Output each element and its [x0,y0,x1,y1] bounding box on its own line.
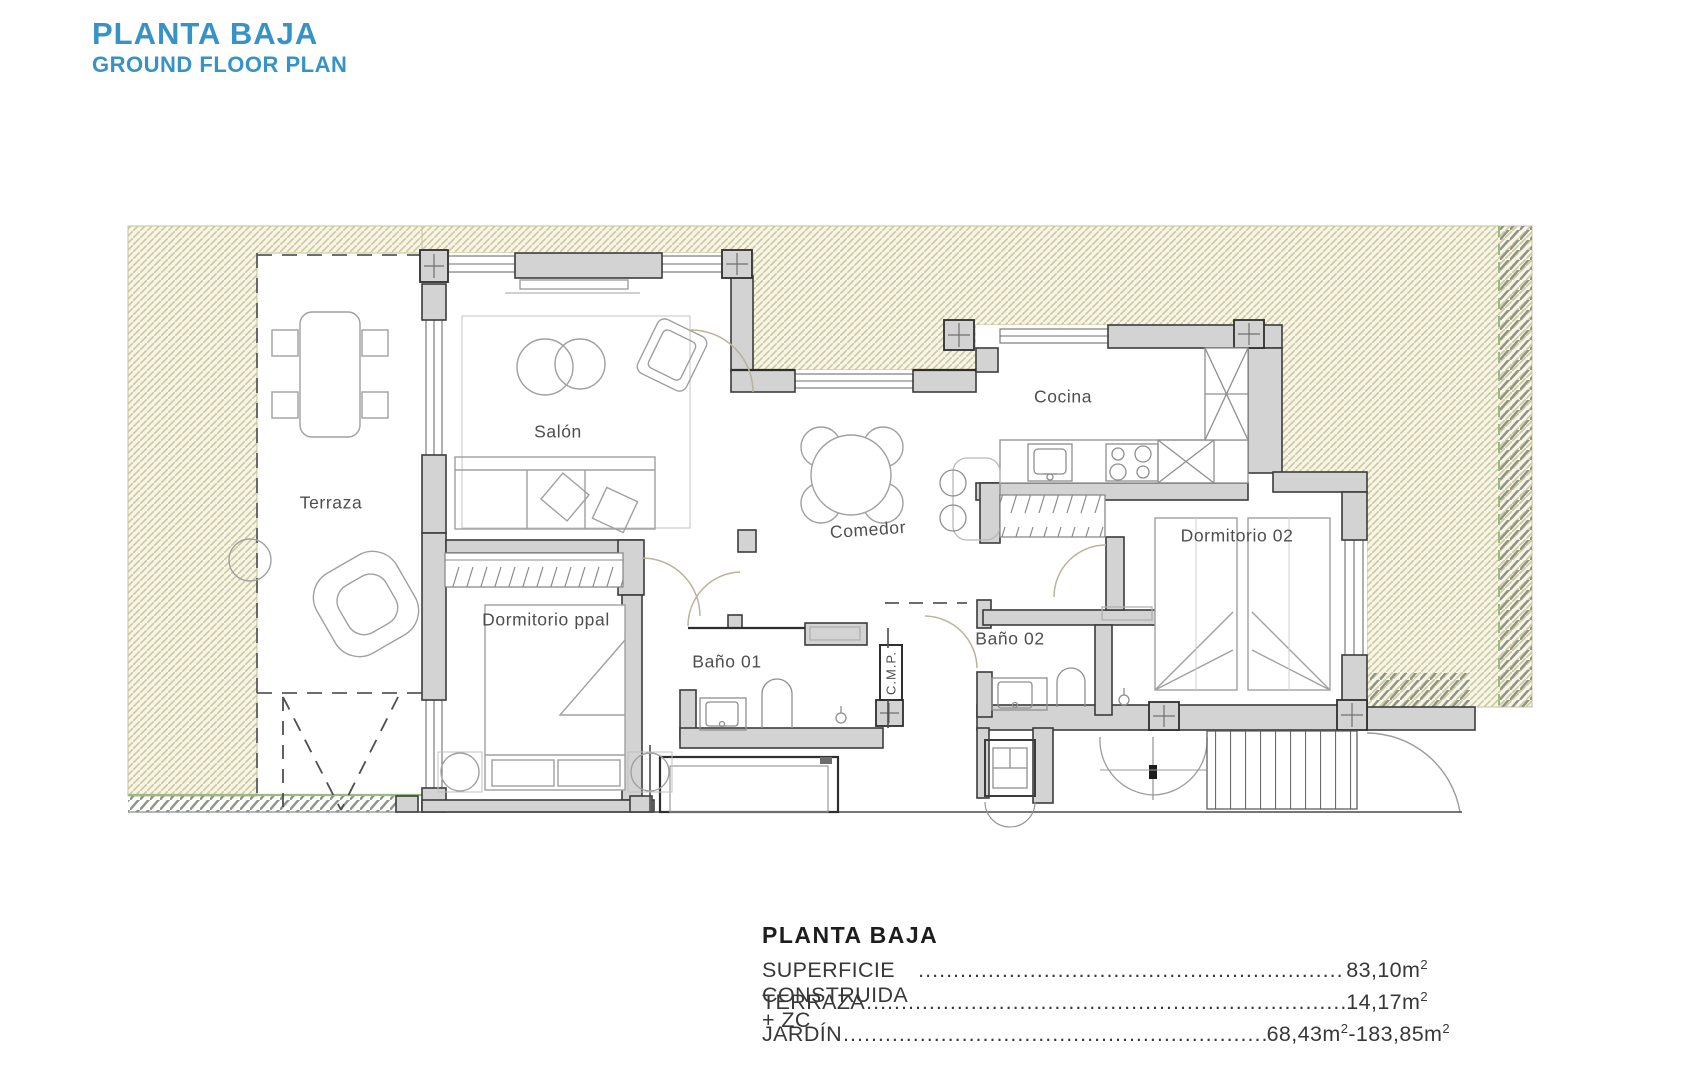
terrace-dashed-boundary [257,253,446,796]
room-label-terraza: Terraza [300,493,363,514]
door-hinge-mark [1149,765,1157,779]
dotted-leader [866,990,1345,1015]
room-label-dormitorio-ppal: Dormitorio ppal [482,610,610,631]
area-summary: PLANTA BAJA SUPERFICIE CONSTRUIDA + ZC83… [762,922,1450,1053]
floor-plan: Terraza Salón Cocina Comedor Dormitorio … [0,0,1700,1080]
room-label-cocina: Cocina [1034,387,1092,408]
room-label-dormitorio-02: Dormitorio 02 [1181,526,1294,547]
summary-heading: PLANTA BAJA [762,922,1450,949]
terrace-furniture [229,312,429,667]
summary-label: TERRAZA [762,990,865,1015]
room-label-salon: Salón [534,422,582,443]
dotted-leader [918,958,1345,983]
summary-value-2: -183,85m [1348,1022,1442,1046]
room-label-cmp: C.M.P. [884,651,899,695]
room-label-bano-01: Baño 01 [692,652,761,673]
page: PLANTA BAJA GROUND FLOOR PLAN [0,0,1700,1080]
room-label-bano-02: Baño 02 [975,629,1044,650]
section-band-bottom-right [1370,673,1470,707]
porch-door [660,757,838,812]
awning-dashed-v [283,697,398,810]
summary-row-built-area: SUPERFICIE CONSTRUIDA + ZC83,10m2 [762,957,1428,989]
summary-value: 68,43m [1267,1022,1341,1046]
dotted-leader [843,1022,1266,1047]
summary-row-garden: JARDÍN68,43m2-183,85m2 [762,1021,1450,1053]
summary-label: JARDÍN [762,1022,842,1047]
summary-value: 83,10m [1346,958,1420,982]
summary-value: 14,17m [1346,990,1420,1014]
neighbor-hatch-strip [1499,226,1532,707]
